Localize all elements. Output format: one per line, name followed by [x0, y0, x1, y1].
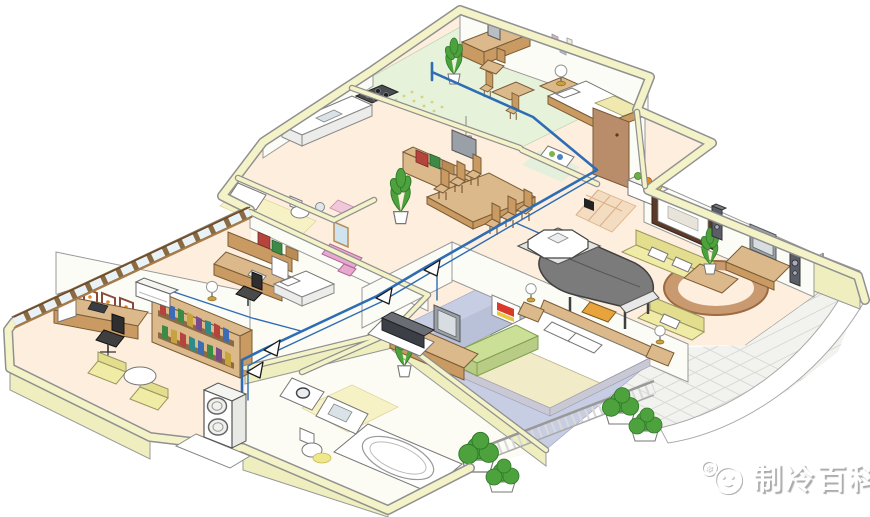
floor-lamp [206, 281, 217, 301]
watermark-text: 制冷百科 [753, 456, 870, 498]
penguin-face-icon [715, 467, 741, 493]
scene-svg [0, 0, 870, 517]
watermark: ❄ 制冷百科 [698, 456, 870, 498]
watermark-logo: ❄ [698, 457, 746, 497]
snowflake-icon: ❄ [705, 464, 713, 475]
round-table [124, 367, 156, 385]
entry-door [593, 108, 629, 188]
hvac-house-illustration: ❄ 制冷百科 [0, 0, 870, 517]
bedside-lamp [555, 65, 567, 86]
